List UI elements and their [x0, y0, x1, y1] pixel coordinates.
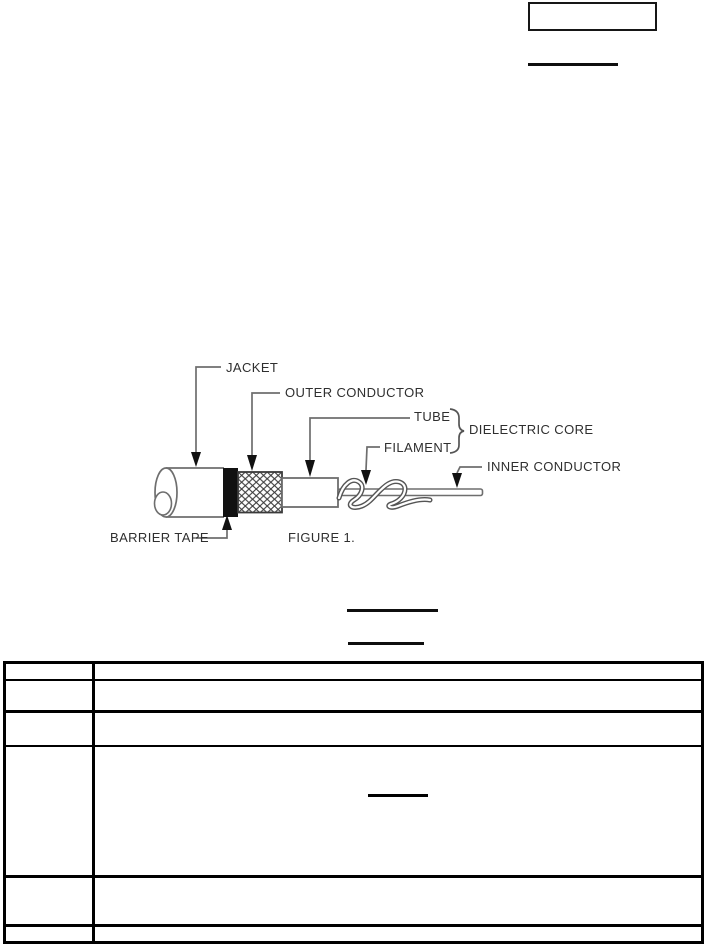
tube-label: TUBE [414, 409, 450, 424]
data-table [3, 661, 704, 944]
cable-drawing [155, 468, 483, 517]
table-cell [95, 681, 701, 710]
form-box [528, 2, 657, 31]
table-cell [95, 878, 701, 924]
table-cell [95, 927, 701, 941]
table-cell [95, 747, 701, 875]
dielectric-tube-shape [282, 478, 338, 507]
jacket-label: JACKET [226, 360, 278, 375]
outer-conductor-leader [252, 393, 280, 455]
table-row [6, 664, 701, 681]
dielectric-core-brace [450, 409, 464, 453]
cell-underline [368, 794, 428, 797]
document-page: { "page": { "type": "scanned-technical-d… [0, 0, 708, 947]
table-cell [6, 713, 95, 745]
table-row [6, 927, 701, 941]
table-row [6, 878, 701, 927]
dielectric-core-label: DIELECTRIC CORE [469, 422, 593, 437]
table-cell [95, 713, 701, 745]
inner-conductor-label: INNER CONDUCTOR [487, 459, 621, 474]
table-cell [6, 681, 95, 710]
filament-label: FILAMENT [384, 440, 451, 455]
outer-conductor-label: OUTER CONDUCTOR [285, 385, 424, 400]
braid-pattern [238, 472, 282, 513]
arrow-down-icon [452, 473, 462, 488]
table-row [6, 713, 701, 747]
table-cell [6, 747, 95, 875]
table-cell [6, 927, 95, 941]
heading-underline-2 [348, 642, 424, 645]
arrow-down-icon [247, 455, 257, 471]
jacket-end-inner [155, 492, 172, 515]
filament-leader [366, 447, 380, 470]
cable-figure: JACKET OUTER CONDUCTOR TUBE DIELECTRIC C… [0, 355, 708, 555]
arrow-down-icon [191, 452, 201, 467]
inner-conductor-leader [457, 467, 482, 473]
barrier-tape-label: BARRIER TAPE [110, 530, 209, 545]
table-row [6, 681, 701, 713]
table-cell [6, 878, 95, 924]
jacket-leader [196, 367, 221, 452]
table-cell [95, 664, 701, 679]
table-row [6, 747, 701, 878]
heading-underline-1 [347, 609, 438, 612]
top-right-underline [528, 63, 618, 66]
barrier-tape-shape [223, 468, 238, 517]
arrow-down-icon [305, 460, 315, 477]
figure-caption: FIGURE 1. [288, 530, 355, 545]
table-cell [6, 664, 95, 679]
